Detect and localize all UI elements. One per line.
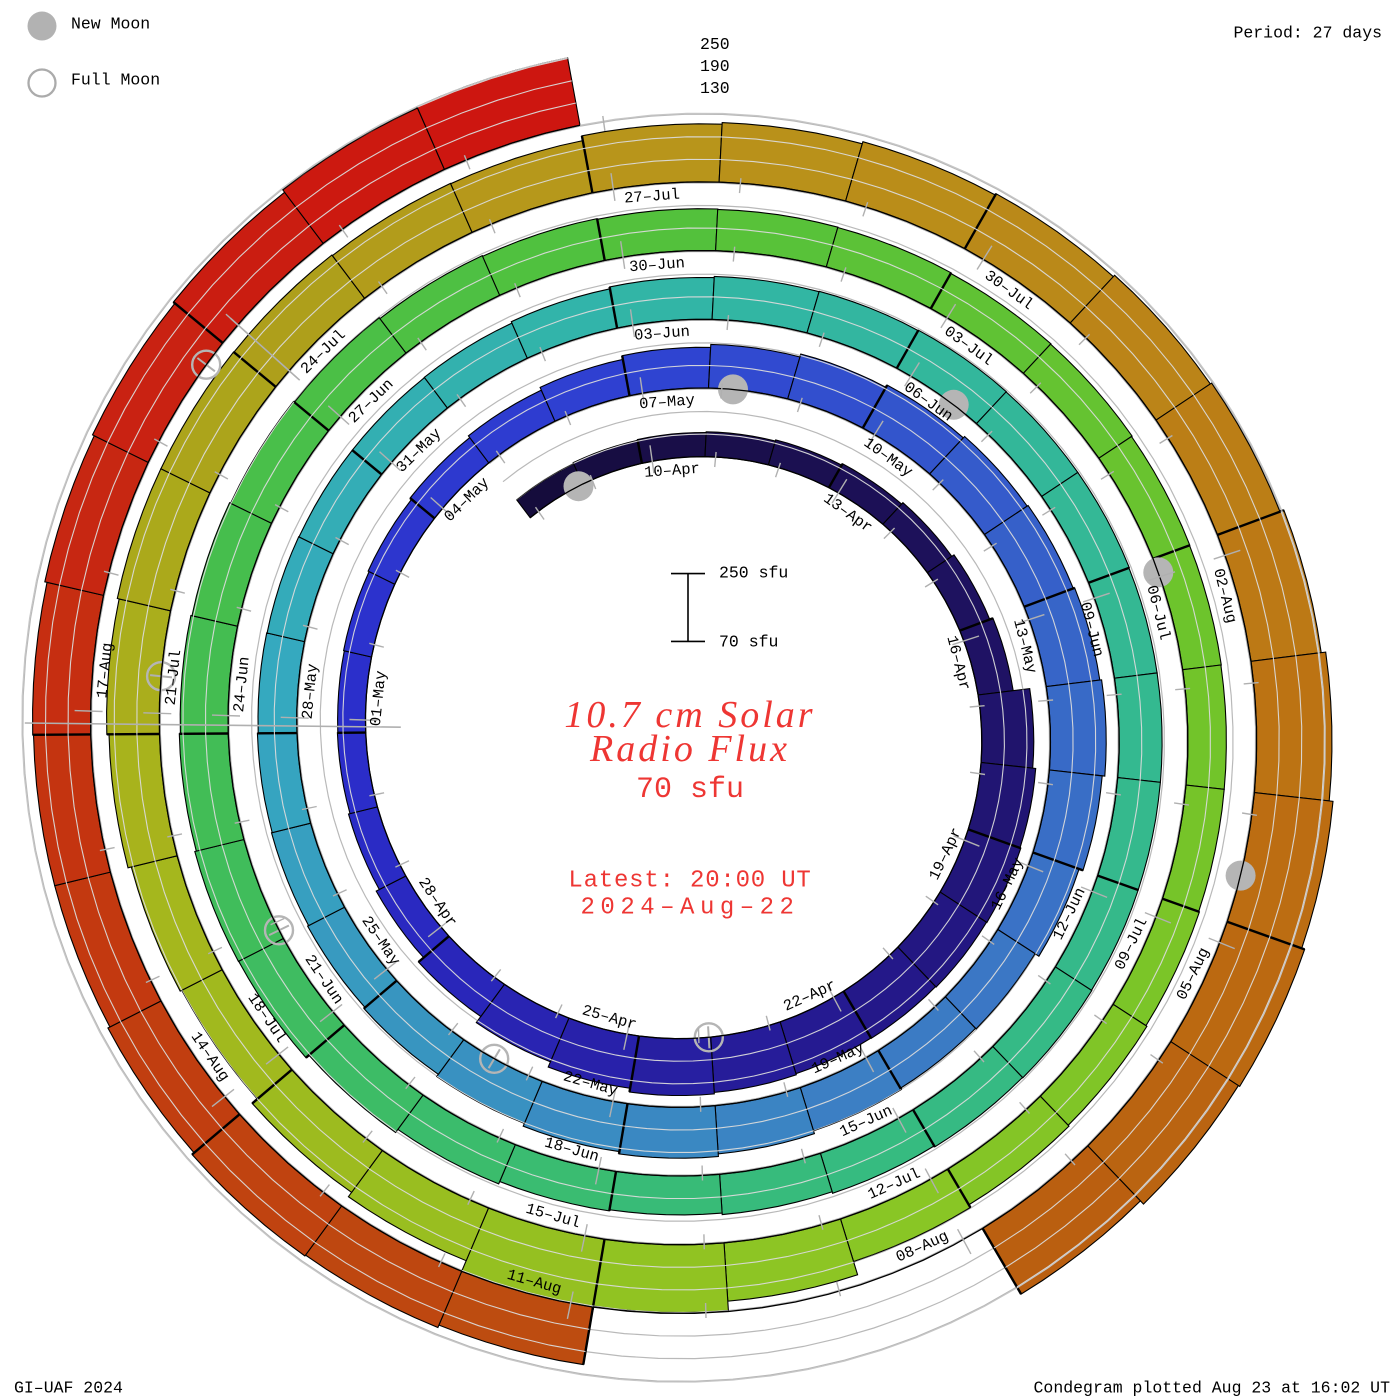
svg-text:190: 190: [700, 57, 730, 76]
svg-text:250 sfu: 250 sfu: [719, 564, 788, 583]
svg-text:130: 130: [700, 79, 730, 98]
svg-text:70 sfu: 70 sfu: [719, 633, 778, 652]
svg-text:2024–Aug–22: 2024–Aug–22: [581, 895, 800, 922]
svg-text:250: 250: [700, 35, 730, 54]
svg-text:New Moon: New Moon: [71, 15, 150, 34]
svg-text:Radio Flux: Radio Flux: [589, 728, 790, 770]
svg-text:GI–UAF 2024: GI–UAF 2024: [14, 1379, 123, 1398]
svg-text:70 sfu: 70 sfu: [636, 773, 744, 807]
svg-text:Latest: 20:00 UT: Latest: 20:00 UT: [568, 868, 811, 895]
svg-text:Condegram plotted Aug 23 at 16: Condegram plotted Aug 23 at 16:02 UT: [1034, 1379, 1391, 1398]
svg-text:Period: 27 days: Period: 27 days: [1233, 24, 1382, 43]
svg-text:Full Moon: Full Moon: [71, 71, 160, 90]
